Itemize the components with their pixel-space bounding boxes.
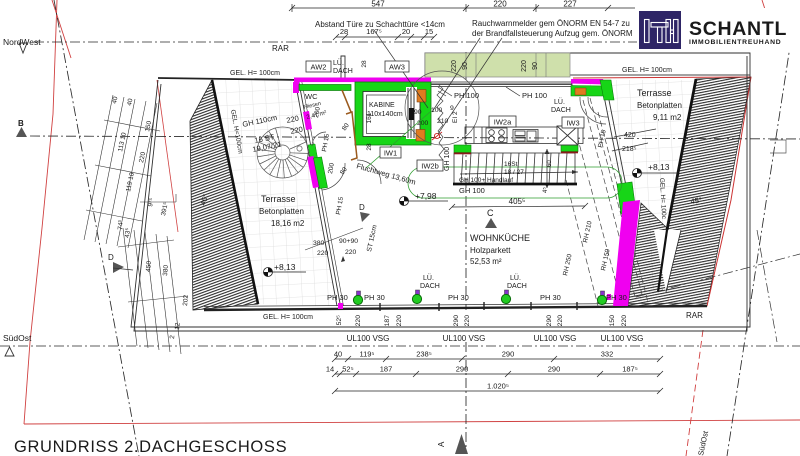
svg-text:220: 220 bbox=[464, 315, 471, 327]
svg-text:150: 150 bbox=[609, 315, 616, 327]
svg-text:UL100 VSG: UL100 VSG bbox=[443, 334, 486, 343]
svg-text:90: 90 bbox=[462, 62, 469, 70]
svg-text:Terrasse: Terrasse bbox=[261, 194, 296, 204]
svg-text:Betonplatten: Betonplatten bbox=[259, 207, 304, 216]
svg-text:SCHANTL: SCHANTL bbox=[689, 18, 787, 40]
svg-text:NordWest: NordWest bbox=[3, 37, 41, 47]
svg-text:547: 547 bbox=[371, 0, 385, 9]
svg-text:DACH: DACH bbox=[507, 283, 527, 290]
svg-text:Holzparkett: Holzparkett bbox=[470, 246, 511, 255]
svg-text:C: C bbox=[487, 208, 494, 218]
svg-text:D: D bbox=[108, 253, 114, 262]
svg-text:Betonplatten: Betonplatten bbox=[637, 101, 682, 110]
svg-text:AW3: AW3 bbox=[389, 63, 405, 72]
svg-text:IW1: IW1 bbox=[384, 149, 397, 158]
svg-text:187⁵: 187⁵ bbox=[622, 365, 638, 374]
svg-text:D: D bbox=[359, 203, 365, 212]
svg-text:43⁵: 43⁵ bbox=[124, 227, 132, 238]
svg-text:220: 220 bbox=[493, 0, 507, 9]
svg-text:18,16 m2: 18,16 m2 bbox=[271, 219, 305, 228]
svg-text:DACH: DACH bbox=[420, 283, 440, 290]
svg-text:B: B bbox=[18, 119, 24, 128]
svg-text:210: 210 bbox=[437, 118, 449, 125]
svg-text:332: 332 bbox=[601, 350, 614, 359]
svg-text:A: A bbox=[437, 441, 446, 447]
svg-text:PH 100: PH 100 bbox=[454, 91, 479, 100]
svg-text:220: 220 bbox=[451, 60, 458, 72]
svg-text:90: 90 bbox=[532, 62, 539, 70]
svg-text:IW2b: IW2b bbox=[421, 162, 439, 171]
svg-text:4⁵: 4⁵ bbox=[542, 187, 549, 193]
svg-text:220: 220 bbox=[355, 315, 362, 327]
svg-text:EI 2: EI 2 bbox=[452, 111, 459, 123]
svg-text:PH 30: PH 30 bbox=[448, 293, 469, 302]
svg-text:187: 187 bbox=[384, 315, 391, 327]
svg-text:220: 220 bbox=[345, 249, 357, 256]
svg-text:AW2: AW2 bbox=[311, 63, 327, 72]
svg-text:380: 380 bbox=[162, 264, 170, 276]
svg-text:290: 290 bbox=[548, 365, 561, 374]
svg-text:PH 30: PH 30 bbox=[606, 293, 627, 302]
svg-text:GEL. H= 100cm: GEL. H= 100cm bbox=[263, 314, 313, 321]
svg-text:238⁵: 238⁵ bbox=[416, 350, 432, 359]
svg-text:Terrasse: Terrasse bbox=[637, 88, 672, 98]
svg-text:18 / 27: 18 / 27 bbox=[504, 169, 524, 176]
svg-text:90: 90 bbox=[414, 109, 422, 116]
svg-text:290: 290 bbox=[546, 315, 553, 327]
svg-text:DACH: DACH bbox=[333, 68, 353, 75]
svg-text:28: 28 bbox=[366, 143, 373, 151]
svg-text:PH 100: PH 100 bbox=[522, 91, 547, 100]
svg-text:420: 420 bbox=[624, 132, 636, 139]
svg-text:220: 220 bbox=[317, 250, 329, 257]
svg-text:LÜ.: LÜ. bbox=[333, 59, 344, 67]
svg-text:380: 380 bbox=[313, 240, 325, 247]
svg-text:405⁵: 405⁵ bbox=[509, 197, 526, 206]
svg-text:161: 161 bbox=[366, 112, 373, 123]
svg-text:218⁵: 218⁵ bbox=[622, 146, 637, 153]
svg-text:+8,13: +8,13 bbox=[274, 262, 296, 272]
svg-text:GH 100: GH 100 bbox=[459, 186, 485, 195]
svg-text:52⁵: 52⁵ bbox=[342, 365, 353, 374]
svg-text:WOHNKÜCHE: WOHNKÜCHE bbox=[470, 233, 530, 243]
svg-text:290: 290 bbox=[456, 365, 469, 374]
svg-text:UL100 VSG: UL100 VSG bbox=[601, 334, 644, 343]
svg-text:GEL. H= 100cm: GEL. H= 100cm bbox=[622, 67, 672, 74]
svg-text:100: 100 bbox=[431, 107, 443, 114]
svg-text:119⁵: 119⁵ bbox=[359, 350, 374, 359]
svg-text:GH 100+ Handlauf: GH 100+ Handlauf bbox=[459, 177, 513, 184]
svg-text:GEL. H= 100cm: GEL. H= 100cm bbox=[230, 70, 280, 77]
svg-text:UL100 VSG: UL100 VSG bbox=[347, 334, 390, 343]
svg-text:9: 9 bbox=[450, 105, 454, 112]
svg-text:IW3: IW3 bbox=[566, 119, 579, 128]
svg-text:GH 100: GH 100 bbox=[444, 147, 451, 171]
svg-text:LÜ.: LÜ. bbox=[554, 98, 565, 106]
svg-text:74³: 74³ bbox=[117, 219, 125, 230]
svg-text:SüdOst: SüdOst bbox=[3, 333, 32, 343]
svg-text:PH 30: PH 30 bbox=[327, 293, 348, 302]
svg-text:52,53 m²: 52,53 m² bbox=[470, 257, 502, 266]
svg-text:LÜ.: LÜ. bbox=[423, 274, 434, 282]
svg-text:450: 450 bbox=[145, 260, 153, 272]
svg-text:IMMOBILIENTREUHAND: IMMOBILIENTREUHAND bbox=[689, 39, 781, 46]
svg-text:90+90: 90+90 bbox=[339, 238, 358, 245]
svg-text:220: 220 bbox=[621, 315, 628, 327]
svg-text:+8,13: +8,13 bbox=[648, 162, 670, 172]
svg-text:GRUNDRISS 2.DACHGESCHOSS: GRUNDRISS 2.DACHGESCHOSS bbox=[14, 438, 287, 456]
svg-text:290: 290 bbox=[502, 350, 515, 359]
svg-text:KABINE: KABINE bbox=[369, 102, 395, 109]
svg-text:200: 200 bbox=[417, 120, 429, 127]
svg-text:PH 30: PH 30 bbox=[364, 293, 385, 302]
svg-text:9,11 m2: 9,11 m2 bbox=[653, 113, 682, 122]
svg-text:Rauchwarnmelder gem ÖNORM EN 5: Rauchwarnmelder gem ÖNORM EN 54-7 zu bbox=[472, 19, 630, 28]
svg-text:28: 28 bbox=[361, 60, 368, 68]
svg-text:DACH: DACH bbox=[551, 107, 571, 114]
svg-text:40: 40 bbox=[334, 350, 342, 359]
svg-text:IW2a: IW2a bbox=[494, 118, 512, 127]
svg-text:290: 290 bbox=[453, 315, 460, 327]
svg-text:Abstand Türe zu Schachttüre <1: Abstand Türe zu Schachttüre <14cm bbox=[315, 20, 445, 29]
svg-text:RAR: RAR bbox=[686, 311, 703, 320]
svg-text:16St: 16St bbox=[504, 161, 518, 168]
svg-text:WC: WC bbox=[305, 92, 318, 101]
svg-text:PH 30: PH 30 bbox=[540, 293, 561, 302]
svg-text:der Brandfallsteuerung Aufzug: der Brandfallsteuerung Aufzug gem. ÖNORM bbox=[472, 29, 633, 38]
svg-text:52⁵: 52⁵ bbox=[336, 315, 343, 326]
svg-text:12: 12 bbox=[174, 322, 182, 330]
svg-text:+7,98: +7,98 bbox=[415, 191, 437, 201]
svg-text:220: 220 bbox=[396, 315, 403, 327]
svg-text:227: 227 bbox=[563, 0, 577, 9]
svg-text:202: 202 bbox=[182, 294, 190, 306]
svg-text:60: 60 bbox=[547, 160, 553, 167]
svg-text:1.020⁵: 1.020⁵ bbox=[487, 382, 509, 391]
svg-text:14: 14 bbox=[326, 365, 334, 374]
svg-text:45°: 45° bbox=[690, 195, 702, 205]
svg-text:220: 220 bbox=[557, 315, 564, 327]
svg-text:187: 187 bbox=[380, 365, 393, 374]
svg-text:RAR: RAR bbox=[272, 44, 289, 53]
svg-text:UL100 VSG: UL100 VSG bbox=[534, 334, 577, 343]
svg-text:LÜ.: LÜ. bbox=[510, 274, 521, 282]
svg-text:220: 220 bbox=[521, 60, 528, 72]
